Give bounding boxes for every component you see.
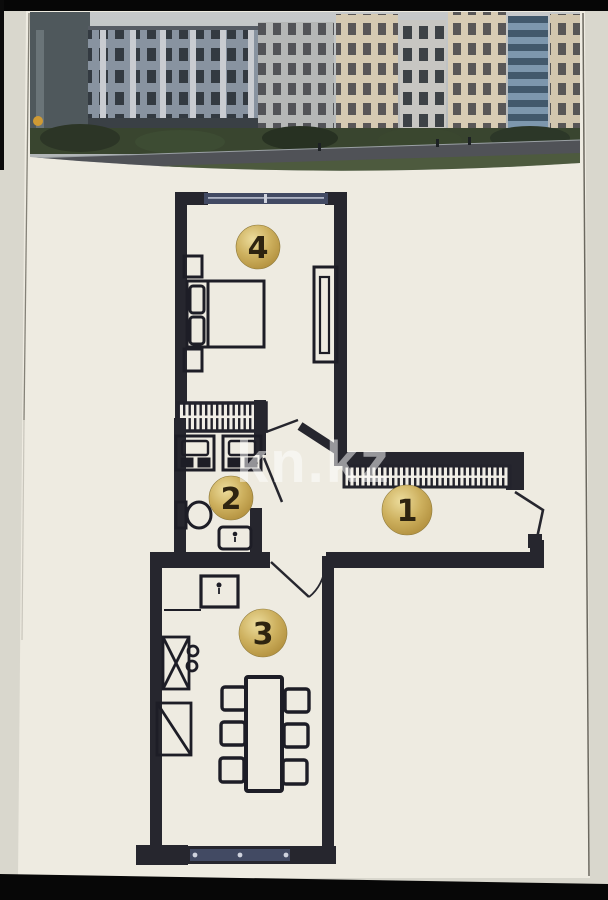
- top-black-bar: [0, 0, 608, 11]
- street-lamp: [33, 116, 43, 126]
- room-marker-3-number: 3: [253, 617, 274, 652]
- scene: 1 2 3 4 kn.kz: [0, 0, 608, 900]
- building-c-windows: [336, 14, 398, 148]
- building-b-windows: [258, 22, 334, 144]
- building-far-left-detail: [36, 30, 44, 130]
- room-marker-3: 3: [239, 609, 287, 657]
- room-marker-4: 4: [236, 225, 280, 269]
- bathroom-closet-midline: [181, 416, 263, 419]
- watermark: kn.kz: [236, 430, 391, 495]
- building-render-photo: [30, 12, 580, 188]
- room-marker-1-number: 1: [397, 494, 418, 529]
- bedroom-window-mullion: [264, 194, 267, 203]
- room-marker-4-number: 4: [248, 231, 269, 266]
- left-black-sliver: [0, 0, 4, 170]
- listing-photo-frame: 1 2 3 4 kn.kz: [0, 0, 608, 900]
